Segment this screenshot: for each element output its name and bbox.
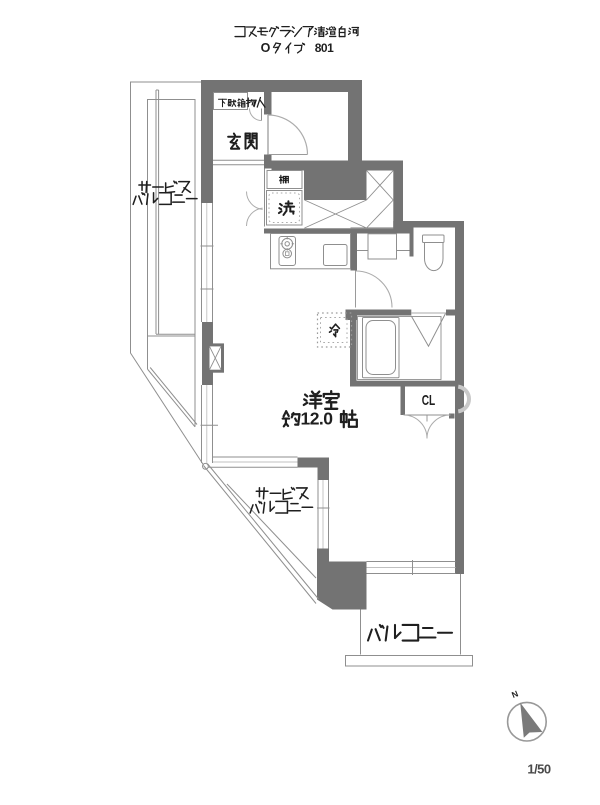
svg-text:12.0: 12.0 bbox=[300, 409, 333, 429]
svg-text:801: 801 bbox=[315, 41, 334, 55]
svg-text:1/50: 1/50 bbox=[527, 762, 551, 777]
svg-text:CL: CL bbox=[422, 392, 436, 409]
svg-text:O: O bbox=[261, 41, 271, 55]
